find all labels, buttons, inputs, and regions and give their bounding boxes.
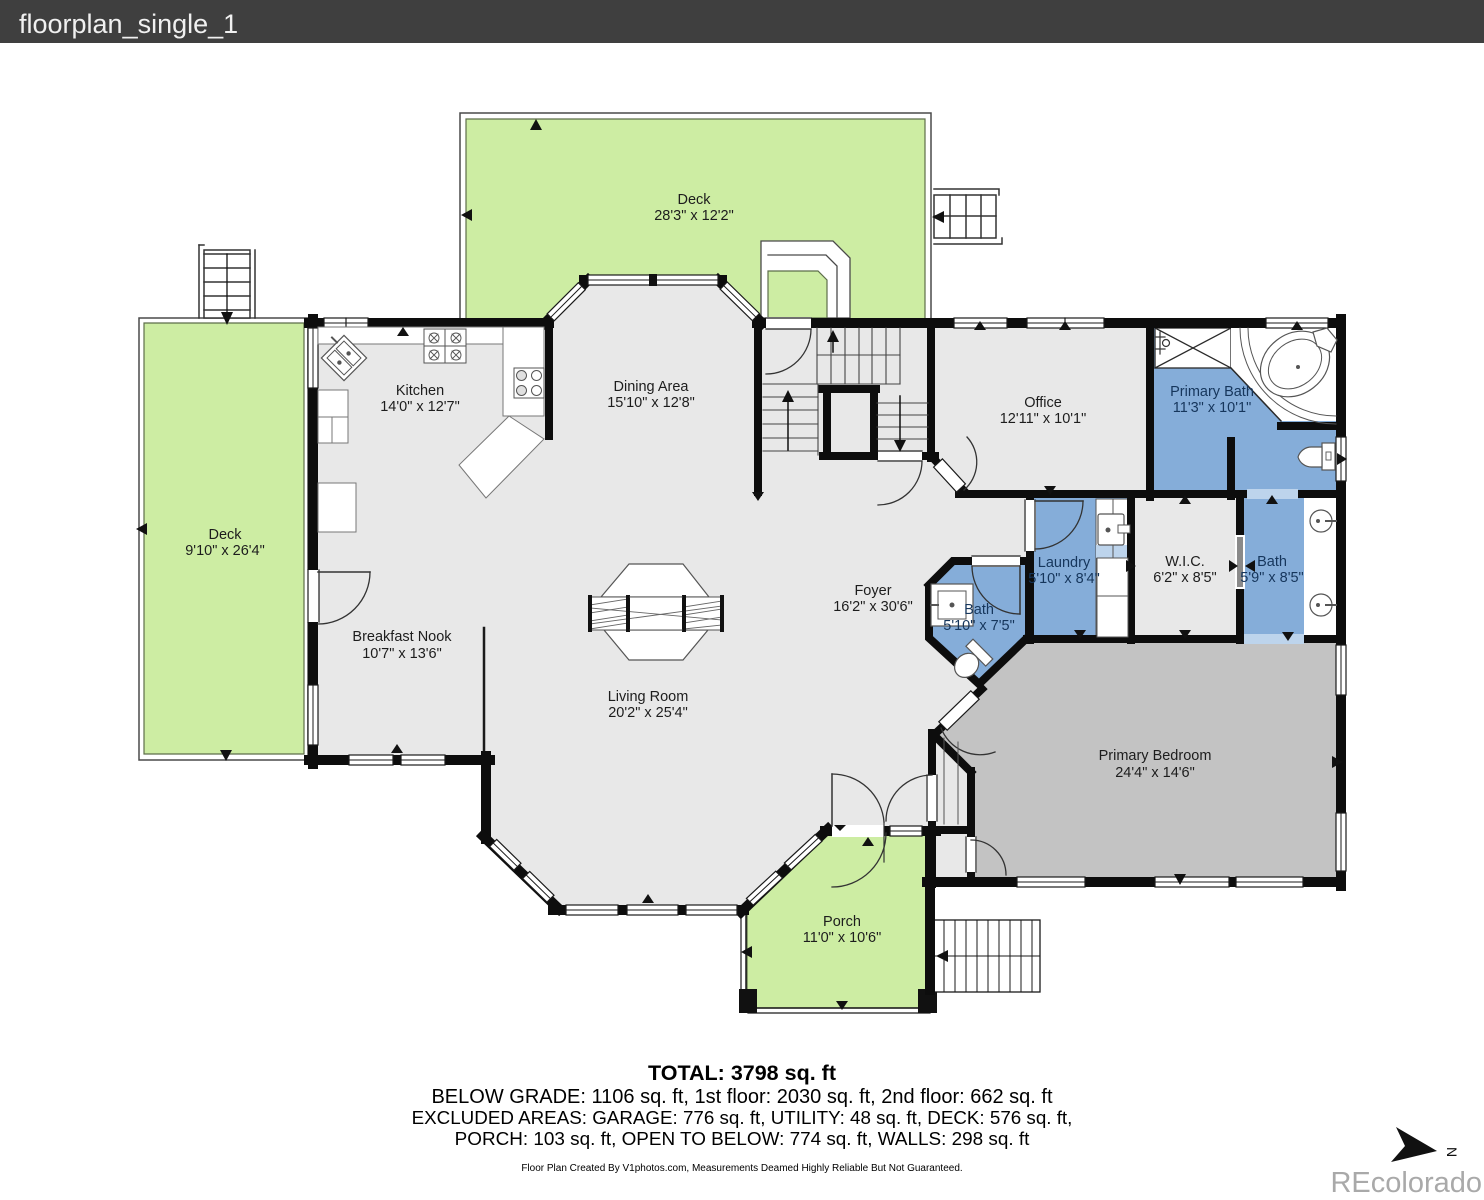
svg-text:16'2" x 30'6": 16'2" x 30'6" <box>833 599 913 615</box>
svg-text:Primary Bath: Primary Bath <box>1170 384 1254 400</box>
svg-text:24'4" x 14'6": 24'4" x 14'6" <box>1115 765 1195 781</box>
svg-text:Breakfast Nook: Breakfast Nook <box>352 629 452 645</box>
svg-text:28'3" x 12'2": 28'3" x 12'2" <box>654 208 734 224</box>
svg-text:PORCH: 103 sq. ft, OPEN TO BEL: PORCH: 103 sq. ft, OPEN TO BELOW: 774 sq… <box>455 1129 1030 1150</box>
svg-text:Living Room: Living Room <box>608 689 689 705</box>
svg-text:Deck: Deck <box>677 192 711 208</box>
svg-text:Porch: Porch <box>823 914 861 930</box>
svg-text:Office: Office <box>1024 395 1062 411</box>
svg-text:W.I.C.: W.I.C. <box>1165 554 1204 570</box>
svg-text:15'10" x 12'8": 15'10" x 12'8" <box>607 395 695 411</box>
svg-text:10'7" x 13'6": 10'7" x 13'6" <box>362 646 442 662</box>
svg-text:5'10" x 8'4": 5'10" x 8'4" <box>1028 571 1099 587</box>
svg-text:Primary Bedroom: Primary Bedroom <box>1099 748 1212 764</box>
svg-text:11'3" x 10'1": 11'3" x 10'1" <box>1173 400 1251 416</box>
svg-text:20'2" x 25'4": 20'2" x 25'4" <box>608 705 688 721</box>
svg-text:Bath: Bath <box>1257 554 1287 570</box>
svg-text:9'10" x 26'4": 9'10" x 26'4" <box>185 543 265 559</box>
svg-text:11'0" x 10'6": 11'0" x 10'6" <box>803 930 881 946</box>
svg-text:REcolorado: REcolorado <box>1330 1167 1482 1199</box>
svg-text:floorplan_single_1: floorplan_single_1 <box>19 9 238 39</box>
svg-text:12'11" x 10'1": 12'11" x 10'1" <box>1000 411 1087 427</box>
svg-text:5'9" x 8'5": 5'9" x 8'5" <box>1240 570 1303 586</box>
svg-text:EXCLUDED AREAS: GARAGE: 776 sq: EXCLUDED AREAS: GARAGE: 776 sq. ft, UTIL… <box>412 1107 1073 1128</box>
svg-text:Deck: Deck <box>208 527 242 543</box>
svg-text:Dining Area: Dining Area <box>614 379 690 395</box>
svg-text:BELOW GRADE: 1106 sq. ft, 1st: BELOW GRADE: 1106 sq. ft, 1st floor: 203… <box>431 1086 1052 1108</box>
svg-text:14'0" x 12'7": 14'0" x 12'7" <box>380 399 460 415</box>
svg-text:N: N <box>1444 1147 1460 1157</box>
svg-text:5'10" x 7'5": 5'10" x 7'5" <box>943 618 1014 634</box>
svg-text:6'2" x 8'5": 6'2" x 8'5" <box>1153 570 1216 586</box>
svg-text:Kitchen: Kitchen <box>396 383 444 399</box>
svg-text:Bath: Bath <box>964 602 994 618</box>
svg-text:Laundry: Laundry <box>1038 555 1091 571</box>
svg-text:Foyer: Foyer <box>854 583 891 599</box>
svg-text:TOTAL: 3798 sq. ft: TOTAL: 3798 sq. ft <box>648 1061 836 1085</box>
svg-text:Floor Plan Created By V1photos: Floor Plan Created By V1photos.com, Meas… <box>521 1163 962 1174</box>
